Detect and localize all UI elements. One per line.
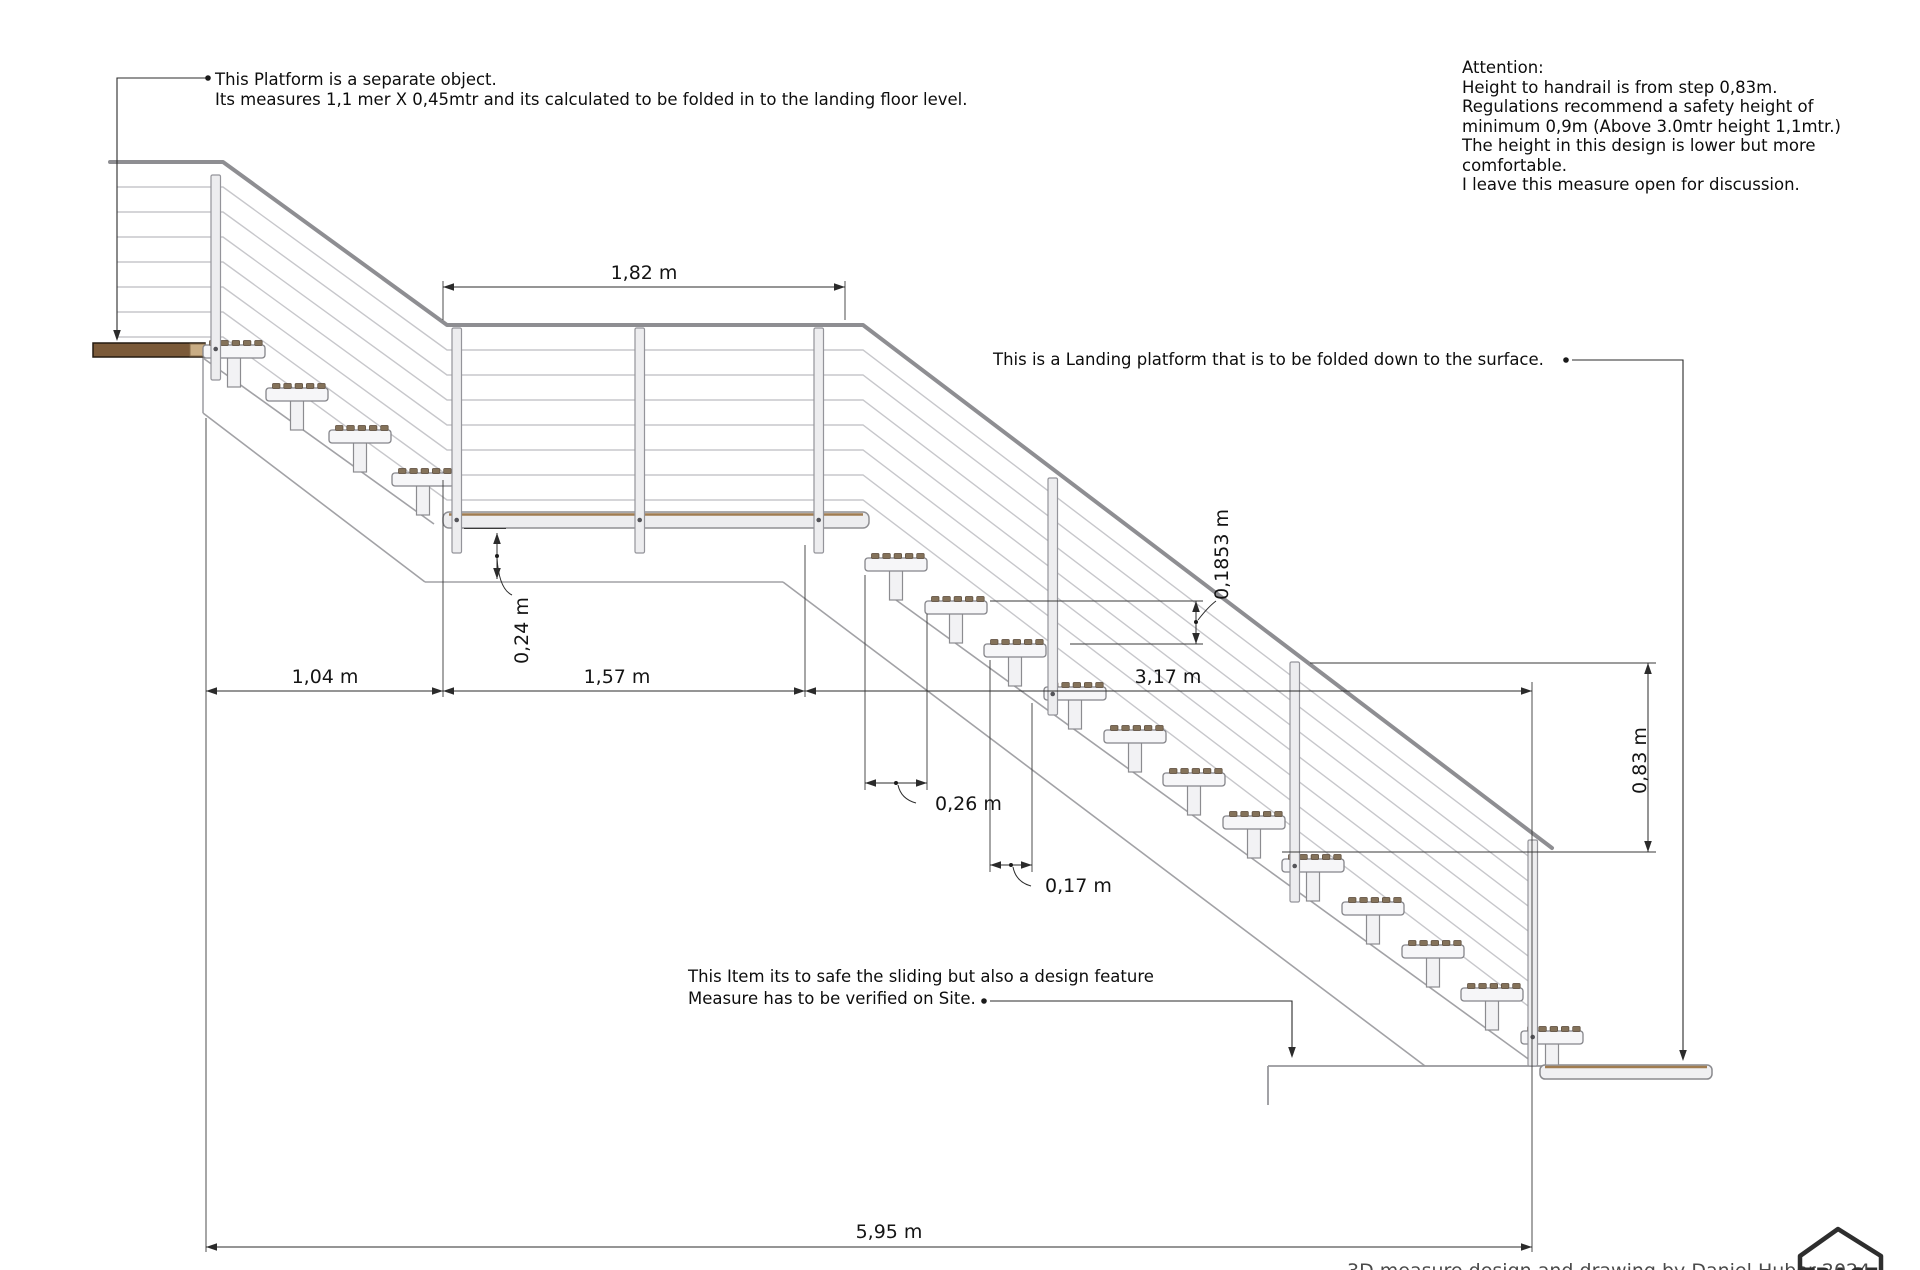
tread-wood-strip	[1550, 1027, 1558, 1032]
tread-wood-strip	[318, 384, 326, 389]
tread-wood-strip	[1349, 898, 1357, 903]
dim-arrow	[1192, 633, 1200, 644]
dim-arrow	[794, 687, 805, 695]
bottom-landing-platform	[1540, 1065, 1712, 1079]
cable-line	[117, 287, 1532, 959]
cable-line	[117, 212, 1532, 884]
dim-arrow	[834, 283, 845, 291]
post-screw	[1530, 1035, 1535, 1040]
dim-arrow	[865, 779, 876, 787]
tread-wood-strip	[883, 554, 891, 559]
step-stem	[417, 485, 430, 515]
dim-landing-width: 1,82 m	[611, 262, 678, 284]
tread-wood-strip	[1394, 898, 1402, 903]
slide-note-line2: Measure has to be verified on Site.	[688, 988, 1154, 1010]
tread-wood-strip	[1360, 898, 1368, 903]
tread-wood-strip	[1442, 941, 1450, 946]
tread-wood-strip	[1013, 640, 1021, 645]
leader-dot	[1194, 620, 1198, 624]
leader-dot	[495, 554, 499, 558]
tread-wood-strip	[1002, 640, 1010, 645]
tread-wood-strip	[1263, 812, 1271, 817]
leader-dot	[205, 75, 211, 81]
leader-dot	[1563, 357, 1569, 363]
tread-wood-strip	[1133, 726, 1141, 731]
dim-arrow	[443, 687, 454, 695]
railing-post	[1048, 478, 1058, 715]
tread-wood-strip	[1513, 984, 1521, 989]
railing-post	[1528, 840, 1538, 1066]
tread-wood-strip	[306, 384, 314, 389]
slide-note-line1: This Item its to safe the sliding but al…	[688, 966, 1154, 988]
dim-handrail-height: 0,83 m	[1629, 727, 1651, 794]
step-stem	[1188, 785, 1201, 815]
tread-wood-strip	[932, 597, 940, 602]
tread-wood-strip	[1084, 683, 1092, 688]
dim-arrow	[1521, 1243, 1532, 1251]
step-stem	[1069, 699, 1082, 729]
dim-arrow	[206, 687, 217, 695]
step-stem	[1427, 957, 1440, 987]
stair-steps	[203, 341, 1583, 1066]
post-screw	[213, 347, 218, 352]
post-screw	[816, 518, 821, 523]
dim-arrow	[1679, 1050, 1687, 1061]
tread-wood-strip	[1454, 941, 1462, 946]
step-tread	[1223, 816, 1285, 829]
tread-wood-strip	[1479, 984, 1487, 989]
tread-wood-strip	[273, 384, 281, 389]
leader-dot	[894, 781, 898, 785]
ground-line	[1268, 1066, 1543, 1105]
dim-arrow	[206, 1243, 217, 1251]
dim-tread-depth: 0,26 m	[935, 793, 1002, 815]
tread-wood-strip	[1311, 855, 1319, 860]
middle-landing-platform	[443, 512, 869, 528]
tread-wood-strip	[943, 597, 951, 602]
tread-wood-strip	[232, 341, 240, 346]
platform-note-leader	[117, 78, 206, 332]
step-stem	[1248, 828, 1261, 858]
railing-posts	[211, 175, 1538, 1066]
post-screw	[637, 518, 642, 523]
tread-wood-strip	[1122, 726, 1130, 731]
attention-line: Regulations recommend a safety height of	[1462, 97, 1841, 117]
tread-wood-strip	[1561, 1027, 1569, 1032]
dim-upper-run: 1,04 m	[292, 666, 359, 688]
attention-line: The height in this design is lower but m…	[1462, 136, 1841, 156]
tread-wood-strip	[965, 597, 973, 602]
landing-note-leader	[1572, 360, 1683, 1052]
step-tread	[329, 430, 391, 443]
step-tread	[266, 388, 328, 401]
step-tread	[392, 473, 454, 486]
tread-wood-strip	[1382, 898, 1390, 903]
tread-wood-strip	[358, 426, 366, 431]
credit-text: 3D measure design and drawing by Daniel …	[1347, 1260, 1870, 1270]
top-folding-platform	[93, 343, 205, 357]
tread-wood-strip	[1252, 812, 1260, 817]
step-stem	[1486, 1000, 1499, 1030]
dim-tread-offset: 0,17 m	[1045, 875, 1112, 897]
tread-wood-strip	[1215, 769, 1223, 774]
step-tread	[1342, 902, 1404, 915]
tread-wood-strip	[1192, 769, 1200, 774]
trace-logo: TRACE	[1800, 1229, 1881, 1270]
tread-wood-strip	[1156, 726, 1164, 731]
tread-wood-strip	[1036, 640, 1044, 645]
tread-wood-strip	[991, 640, 999, 645]
step-tread	[984, 644, 1046, 657]
tread-wood-strip	[1409, 941, 1417, 946]
attention-line: Attention:	[1462, 58, 1841, 78]
dim-arrow	[1288, 1047, 1296, 1058]
tread-wood-strip	[336, 426, 344, 431]
dim-arrow	[805, 687, 816, 695]
tread-wood-strip	[1024, 640, 1032, 645]
tread-wood-strip	[410, 469, 418, 474]
tread-wood-strip	[1539, 1027, 1547, 1032]
step-tread	[1402, 945, 1464, 958]
dim-arrow	[916, 779, 927, 787]
dim-arrow	[1644, 841, 1652, 852]
drawing-sheet: 1,82 m 0,24 m 1,04 m 1,57 m 3,17 m 0,26 …	[0, 0, 1920, 1270]
dim-arrow	[1521, 687, 1532, 695]
step-tread	[1104, 730, 1166, 743]
tread-wood-strip	[1170, 769, 1178, 774]
tread-wood-strip	[1230, 812, 1238, 817]
platform-note: This Platform is a separate object. Its …	[215, 70, 968, 110]
tread-wood-strip	[1322, 855, 1330, 860]
dim-arrow	[432, 687, 443, 695]
tread-wood-strip	[1073, 683, 1081, 688]
step-stem	[1129, 742, 1142, 772]
step-stem	[890, 570, 903, 600]
tread-wood-strip	[1490, 984, 1498, 989]
tread-wood-strip	[1203, 769, 1211, 774]
step-tread	[925, 601, 987, 614]
handrail	[110, 162, 1552, 848]
attention-line: comfortable.	[1462, 156, 1841, 176]
step-stem	[1307, 871, 1320, 901]
tread-wood-strip	[894, 554, 902, 559]
tread-wood-strip	[421, 469, 429, 474]
tread-wood-strip	[1420, 941, 1428, 946]
dim-arrow	[1021, 861, 1032, 869]
attention-line: Height to handrail is from step 0,83m.	[1462, 78, 1841, 98]
tread-wood-strip	[1431, 941, 1439, 946]
tread-wood-strip	[1275, 812, 1283, 817]
tread-wood-strip	[284, 384, 292, 389]
post-screw	[1050, 692, 1055, 697]
platform-note-line1: This Platform is a separate object.	[215, 70, 968, 90]
step-stem	[228, 357, 241, 387]
tread-wood-strip	[1501, 984, 1509, 989]
tread-wood-strip	[399, 469, 407, 474]
tread-wood-strip	[1573, 1027, 1581, 1032]
step-stem	[1546, 1043, 1559, 1065]
tread-wood-strip	[369, 426, 377, 431]
tread-wood-strip	[295, 384, 303, 389]
step-tread	[865, 558, 927, 571]
landing-note: This is a Landing platform that is to be…	[993, 350, 1544, 370]
tread-wood-strip	[381, 426, 389, 431]
attention-line: minimum 0,9m (Above 3.0mtr height 1,1mtr…	[1462, 117, 1841, 137]
step-tread	[1461, 988, 1523, 1001]
tread-wood-strip	[1096, 683, 1104, 688]
dim-landing-depth: 0,24 m	[511, 597, 533, 664]
tread-wood-strip	[1300, 855, 1308, 860]
post-screw	[454, 518, 459, 523]
tread-wood-strip	[1062, 683, 1070, 688]
tread-wood-strip	[1144, 726, 1152, 731]
tread-wood-strip	[432, 469, 440, 474]
leader-dot	[1009, 863, 1013, 867]
tread-wood-strip	[255, 341, 263, 346]
slide-note: This Item its to safe the sliding but al…	[688, 966, 1154, 1010]
dim-arrow	[443, 283, 454, 291]
step-stem	[1009, 656, 1022, 686]
tread-wood-strip	[221, 341, 229, 346]
attention-note: Attention: Height to handrail is from st…	[1462, 58, 1841, 195]
tread-wood-strip	[1371, 898, 1379, 903]
dim-arrow	[1192, 601, 1200, 612]
post-screw	[1292, 864, 1297, 869]
dim-arrow	[1644, 663, 1652, 674]
step-stem	[950, 613, 963, 643]
tread-wood-strip	[444, 469, 452, 474]
attention-line: I leave this measure open for discussion…	[1462, 175, 1841, 195]
step-tread	[1163, 773, 1225, 786]
dim-total-run: 5,95 m	[856, 1221, 923, 1243]
dim-arrow	[113, 330, 121, 341]
dim-lower-run: 3,17 m	[1135, 666, 1202, 688]
step-stem	[354, 442, 367, 472]
cable-line	[117, 237, 1532, 909]
step-stem	[1367, 914, 1380, 944]
tread-wood-strip	[954, 597, 962, 602]
step-stem	[291, 400, 304, 430]
tread-wood-strip	[872, 554, 880, 559]
dim-middle-run: 1,57 m	[584, 666, 651, 688]
tread-wood-strip	[917, 554, 925, 559]
dim-arrow	[990, 861, 1001, 869]
tread-wood-strip	[1468, 984, 1476, 989]
tread-wood-strip	[243, 341, 251, 346]
tread-wood-strip	[1241, 812, 1249, 817]
tread-wood-strip	[1111, 726, 1119, 731]
tread-wood-strip	[1334, 855, 1342, 860]
dim-arrow	[493, 533, 501, 544]
tread-wood-strip	[977, 597, 985, 602]
tread-wood-strip	[905, 554, 913, 559]
dim-step-rise: 0,1853 m	[1211, 509, 1233, 600]
tread-wood-strip	[1181, 769, 1189, 774]
logo-text: TRACE	[1800, 1264, 1879, 1270]
tread-wood-strip	[347, 426, 355, 431]
platform-note-line2: Its measures 1,1 mer X 0,45mtr and its c…	[215, 90, 968, 110]
